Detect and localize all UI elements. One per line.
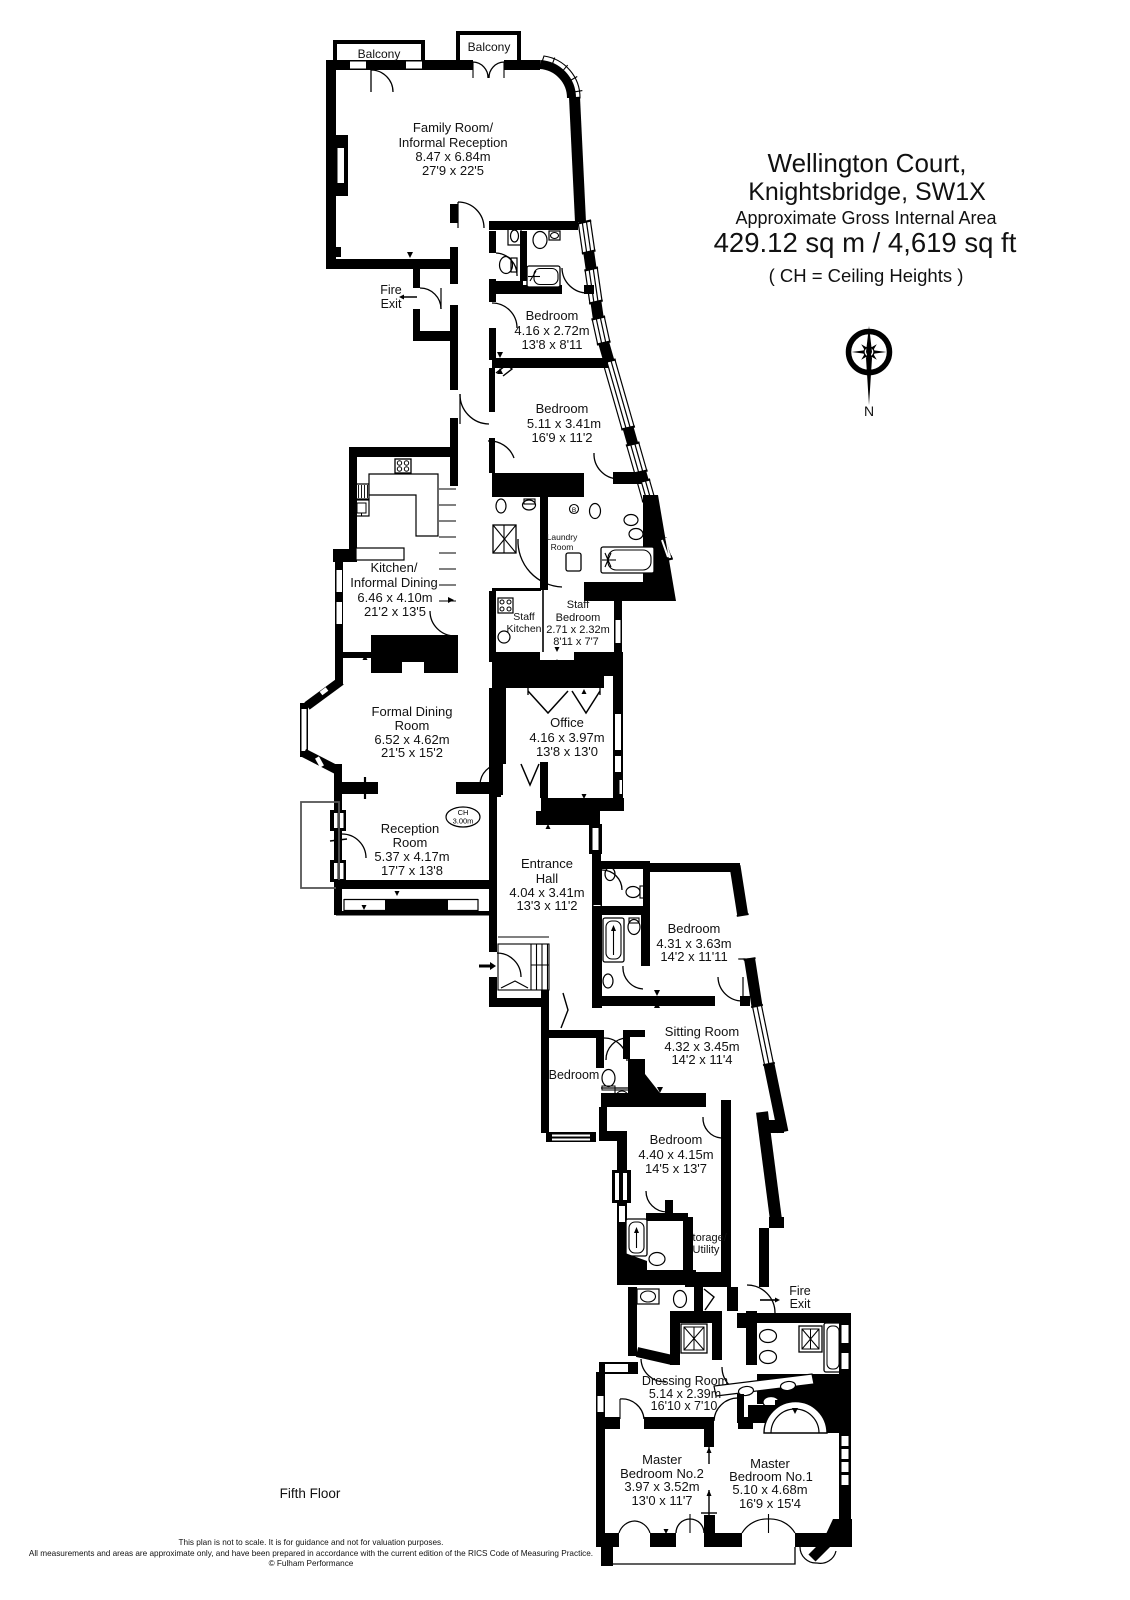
svg-text:5.10 x 4.68m: 5.10 x 4.68m — [732, 1482, 807, 1497]
svg-text:This plan is not to scale. It: This plan is not to scale. It is for gui… — [179, 1538, 444, 1547]
svg-text:13'8 x 8'11: 13'8 x 8'11 — [521, 337, 582, 352]
svg-text:4.16 x 2.72m: 4.16 x 2.72m — [514, 323, 589, 338]
svg-text:Bedroom: Bedroom — [650, 1132, 703, 1147]
svg-text:16'9 x 15'4: 16'9 x 15'4 — [739, 1496, 801, 1511]
svg-text:Fifth Floor: Fifth Floor — [280, 1486, 341, 1501]
svg-text:4.16 x 3.97m: 4.16 x 3.97m — [529, 730, 604, 745]
svg-text:13'0 x 11'7: 13'0 x 11'7 — [631, 1493, 692, 1508]
svg-text:Kitchen: Kitchen — [506, 623, 541, 635]
svg-text:3.97 x 3.52m: 3.97 x 3.52m — [624, 1479, 699, 1494]
svg-text:Informal Reception: Informal Reception — [398, 135, 507, 150]
svg-text:6.46 x 4.10m: 6.46 x 4.10m — [357, 590, 432, 605]
svg-text:All measurements and areas are: All measurements and areas are approxima… — [29, 1549, 593, 1558]
svg-text:14'5 x 13'7: 14'5 x 13'7 — [645, 1161, 707, 1176]
svg-text:Utility: Utility — [693, 1244, 720, 1256]
svg-text:Balcony: Balcony — [468, 40, 511, 54]
svg-text:Balcony: Balcony — [358, 47, 401, 61]
svg-text:27'9 x 22'5: 27'9 x 22'5 — [422, 163, 484, 178]
svg-text:Room: Room — [393, 835, 428, 850]
svg-text:Laundry: Laundry — [547, 532, 578, 542]
svg-text:17'7 x 13'8: 17'7 x 13'8 — [381, 863, 443, 878]
svg-text:Fire: Fire — [789, 1284, 811, 1298]
svg-text:Reception: Reception — [381, 821, 440, 836]
svg-text:Room: Room — [551, 542, 574, 552]
svg-text:8.47 x 6.84m: 8.47 x 6.84m — [415, 149, 490, 164]
svg-text:21'2 x 13'5: 21'2 x 13'5 — [364, 604, 426, 619]
svg-text:2.71 x 2.32m: 2.71 x 2.32m — [546, 624, 610, 636]
svg-text:8'11 x 7'7: 8'11 x 7'7 — [553, 636, 599, 648]
svg-text:13'8 x 13'0: 13'8 x 13'0 — [536, 744, 598, 759]
svg-text:Sitting Room: Sitting Room — [665, 1024, 739, 1039]
svg-text:Kitchen/: Kitchen/ — [371, 560, 418, 575]
svg-text:Exit: Exit — [790, 1297, 811, 1311]
svg-text:Fire: Fire — [380, 283, 402, 297]
svg-text:Room: Room — [395, 718, 430, 733]
svg-text:13'3 x 11'2: 13'3 x 11'2 — [516, 898, 577, 913]
svg-text:3.00m: 3.00m — [453, 817, 474, 826]
svg-text:21'5 x 15'2: 21'5 x 15'2 — [381, 745, 443, 760]
svg-text:Staff: Staff — [567, 599, 590, 611]
svg-text:Staff: Staff — [513, 611, 534, 623]
svg-text:Office: Office — [550, 715, 584, 730]
svg-text:© Fulham Performance: © Fulham Performance — [269, 1559, 354, 1568]
svg-text:5.37 x 4.17m: 5.37 x 4.17m — [374, 849, 449, 864]
svg-text:Entrance: Entrance — [521, 856, 573, 871]
svg-text:Bedroom: Bedroom — [556, 612, 601, 624]
svg-text:16'9 x 11'2: 16'9 x 11'2 — [531, 430, 592, 445]
svg-text:Formal Dining: Formal Dining — [372, 704, 453, 719]
svg-text:14'2 x 11'11: 14'2 x 11'11 — [660, 949, 727, 964]
svg-text:14'2 x 11'4: 14'2 x 11'4 — [671, 1052, 732, 1067]
svg-text:B: B — [572, 507, 576, 514]
svg-text:Knightsbridge, SW1X: Knightsbridge, SW1X — [748, 178, 986, 206]
svg-text:Master: Master — [642, 1452, 682, 1467]
svg-text:Bedroom: Bedroom — [536, 401, 589, 416]
svg-text:Bedroom: Bedroom — [549, 1068, 600, 1082]
svg-text:Approximate Gross Internal Are: Approximate Gross Internal Area — [735, 208, 997, 228]
svg-text:429.12 sq m / 4,619 sq ft: 429.12 sq m / 4,619 sq ft — [714, 227, 1017, 258]
svg-text:Dressing Room: Dressing Room — [642, 1374, 728, 1388]
svg-text:Bedroom: Bedroom — [668, 921, 721, 936]
svg-text:16'10 x 7'10: 16'10 x 7'10 — [651, 1399, 718, 1413]
svg-text:Exit: Exit — [381, 297, 402, 311]
svg-text:Wellington Court,: Wellington Court, — [768, 148, 967, 178]
svg-text:Family Room/: Family Room/ — [413, 120, 494, 135]
svg-text:5.11 x 3.41m: 5.11 x 3.41m — [527, 416, 601, 431]
svg-text:Hall: Hall — [536, 871, 559, 886]
svg-text:N: N — [864, 403, 874, 419]
svg-text:( CH = Ceiling Heights ): ( CH = Ceiling Heights ) — [769, 265, 964, 286]
svg-text:Bedroom: Bedroom — [526, 308, 579, 323]
svg-text:Informal Dining: Informal Dining — [350, 575, 437, 590]
svg-text:4.40 x 4.15m: 4.40 x 4.15m — [638, 1147, 713, 1162]
